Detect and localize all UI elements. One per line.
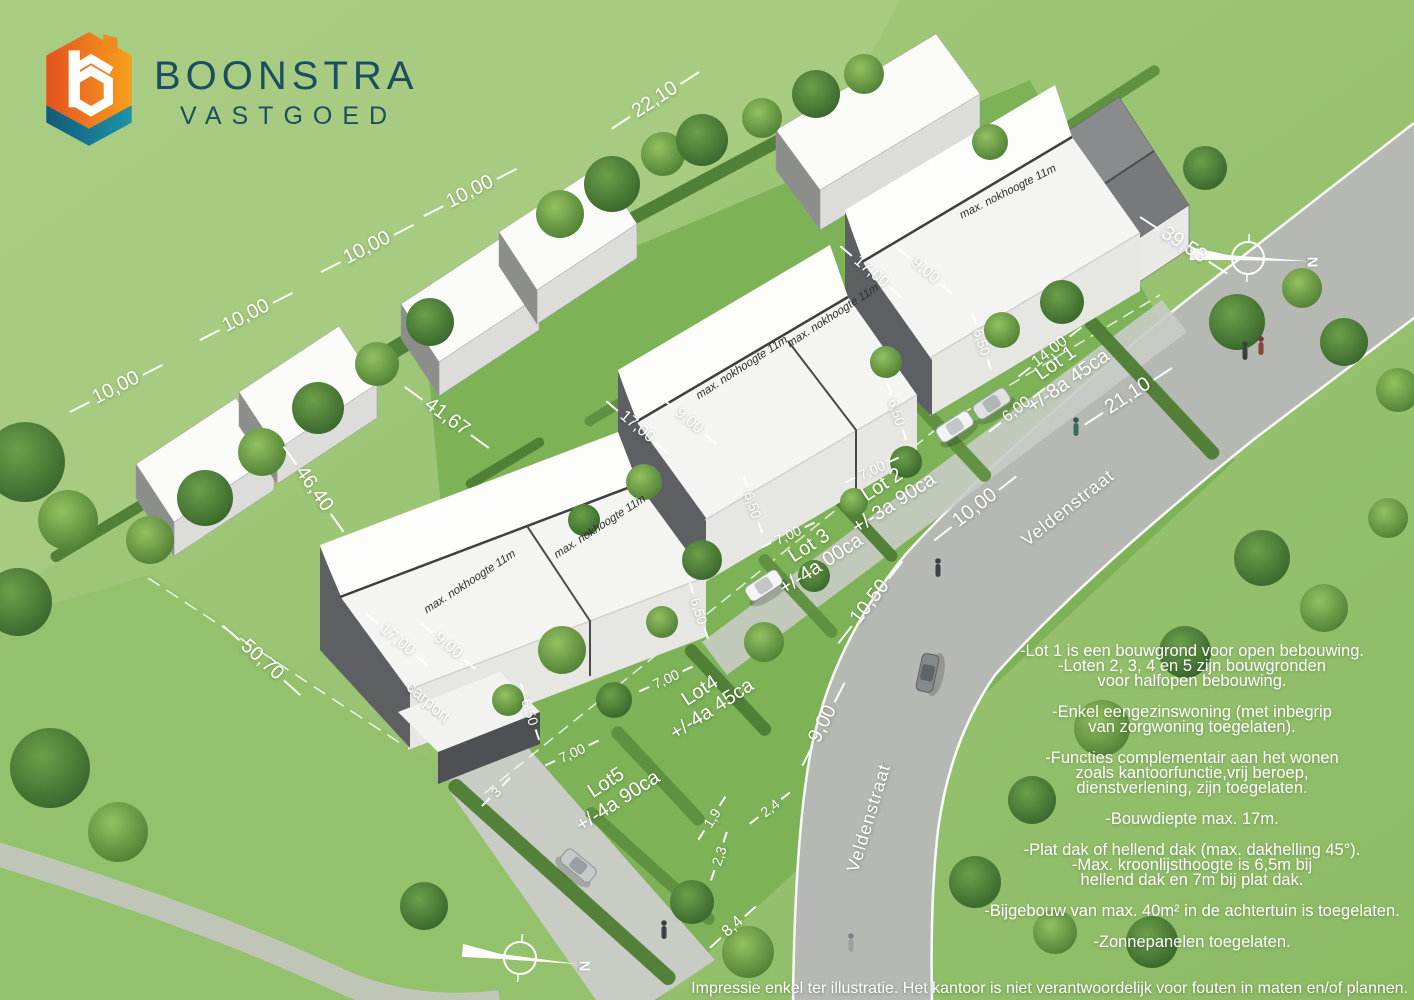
logo-hexagon-icon [38,28,140,150]
regulation-item: -Bouwdiepte max. 17m. [980,812,1404,827]
regulation-item: -Enkel eengezinswoning (met inbegrip van… [980,705,1404,735]
regulation-item: -Zonnepanelen toegelaten. [980,935,1404,950]
regulation-item: -Plat dak of hellend dak (max. dakhellin… [980,843,1404,888]
compass-north-label: N [1304,257,1321,268]
regulation-item: -Functies complementair aan het wonen zo… [980,751,1404,796]
company-logo: BOONSTRA VASTGOED [38,28,418,150]
regulation-item: -Bijgebouw van max. 40m² in de achtertui… [980,904,1404,919]
site-plan-render: 22,10 10,00 10,00 10,00 10,00 39,53 41,6… [0,0,1414,1000]
regulation-item: -Lot 1 is een bouwgrond voor open bebouw… [980,644,1404,689]
compass-north-label: N [576,961,593,972]
logo-text: BOONSTRA VASTGOED [154,54,418,131]
building-regulations: -Lot 1 is een bouwgrond voor open bebouw… [980,644,1404,966]
disclaimer-text: Impressie enkel ter illustratie. Het kan… [691,980,1408,998]
logo-title: BOONSTRA [154,54,418,99]
logo-subtitle: VASTGOED [180,102,418,131]
